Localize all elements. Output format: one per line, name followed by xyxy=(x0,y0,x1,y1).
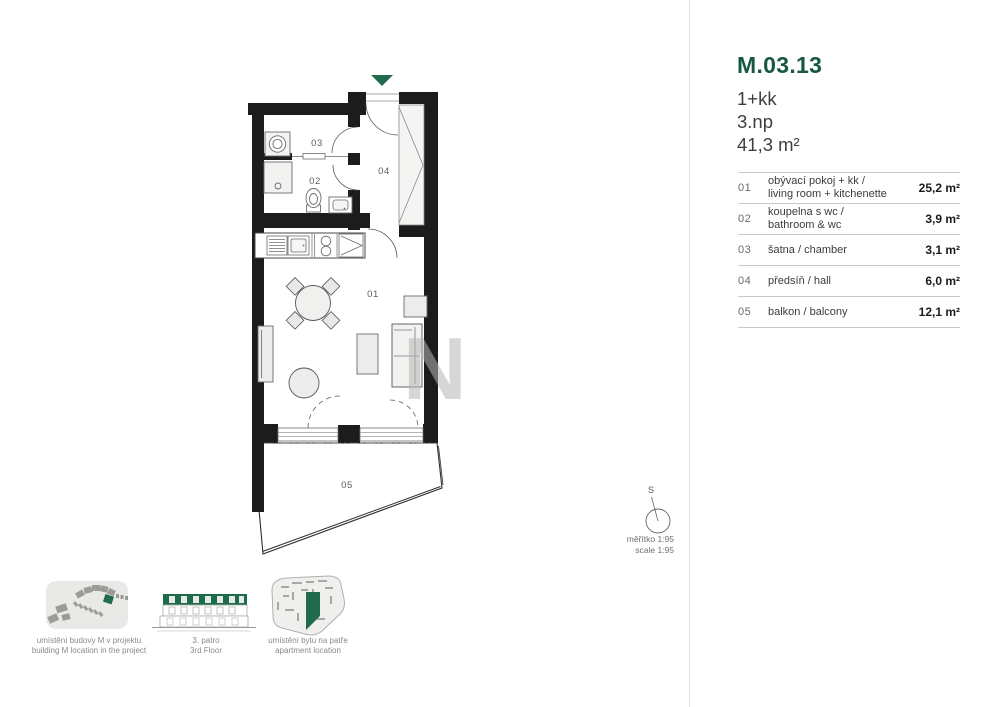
room-number: 05 xyxy=(738,306,768,318)
nightstand xyxy=(404,296,427,317)
room-area: 3,1 m² xyxy=(925,243,960,257)
room-label-01: 01 xyxy=(367,289,379,300)
table-row: 01obývací pokoj + kk /living room + kitc… xyxy=(738,173,960,204)
site-plan-thumbnail xyxy=(46,581,128,629)
room-label-05: 05 xyxy=(341,480,353,491)
caption-line: 3. patro xyxy=(168,636,244,646)
table-row: 05balkon / balcony12,1 m² xyxy=(738,297,960,328)
unit-specs: 1+kk 3.np 41,3 m² xyxy=(737,87,800,156)
room-label-03: 03 xyxy=(311,138,323,149)
unit-total-area: 41,3 m² xyxy=(737,133,800,156)
caption-line: 3rd Floor xyxy=(168,646,244,656)
table-row: 04předsíň / hall6,0 m² xyxy=(738,266,960,297)
caption-line: umístění bytu na patře xyxy=(262,636,354,646)
unit-layout: 1+kk xyxy=(737,87,800,110)
compass-icon: S xyxy=(646,485,670,533)
site-plan-caption: umístění budovy M v projektu building M … xyxy=(30,636,148,656)
panel-divider xyxy=(689,0,690,707)
balcony-outline xyxy=(253,443,443,554)
side-table xyxy=(357,334,378,374)
unit-code: M.03.13 xyxy=(737,52,822,79)
entrance-door xyxy=(366,92,399,104)
compass-north-label: S xyxy=(648,485,654,495)
floor-caption: 3. patro 3rd Floor xyxy=(168,636,244,656)
scale-line-cz: měřítko 1:95 xyxy=(627,534,675,544)
toilet-icon xyxy=(306,189,321,213)
scale-note: měřítko 1:95 scale 1:95 xyxy=(627,534,675,555)
room-number: 02 xyxy=(738,213,768,225)
washing-machine-icon xyxy=(265,132,290,156)
partition-shelf xyxy=(292,154,348,160)
scale-line-en: scale 1:95 xyxy=(635,545,674,555)
room-label-04: 04 xyxy=(378,166,390,177)
caption-line: building M location in the project xyxy=(30,646,148,656)
wardrobe xyxy=(258,326,273,382)
room-area: 6,0 m² xyxy=(925,274,960,288)
dining-table xyxy=(286,278,340,330)
room-name: předsíň / hall xyxy=(768,275,925,288)
room-table: 01obývací pokoj + kk /living room + kitc… xyxy=(738,172,960,328)
room-name: šatna / chamber xyxy=(768,244,925,257)
room-area: 25,2 m² xyxy=(919,181,960,195)
room-area: 3,9 m² xyxy=(925,212,960,226)
room-number: 04 xyxy=(738,275,768,287)
table-row: 02koupelna s wc /bathroom & wc3,9 m² xyxy=(738,204,960,235)
caption-line: umístění budovy M v projektu xyxy=(30,636,148,646)
apartment-caption: umístění bytu na patře apartment locatio… xyxy=(262,636,354,656)
floor-plate-thumbnail xyxy=(272,576,345,635)
room-area: 12,1 m² xyxy=(919,305,960,319)
room-number: 03 xyxy=(738,244,768,256)
unit-floor: 3.np xyxy=(737,110,800,133)
caption-line: apartment location xyxy=(262,646,354,656)
floorplan-sheet: N 03 02 04 01 05 S měřítko 1:95 scale 1:… xyxy=(0,0,1000,707)
elevation-thumbnail xyxy=(152,594,256,631)
room-name: obývací pokoj + kk /living room + kitche… xyxy=(768,175,919,201)
fridge-icon xyxy=(339,234,363,257)
floor-plan-svg: N 03 02 04 01 05 S měřítko 1:95 scale 1:… xyxy=(0,0,1000,707)
hall-closet xyxy=(399,105,424,225)
pouf xyxy=(289,368,319,398)
room-name: balkon / balcony xyxy=(768,306,919,319)
table-row: 03šatna / chamber3,1 m² xyxy=(738,235,960,266)
entrance-arrow-icon xyxy=(371,75,393,86)
shower-icon xyxy=(264,162,292,193)
room-number: 01 xyxy=(738,182,768,194)
watermark-text: N xyxy=(403,319,467,418)
room-name: koupelna s wc /bathroom & wc xyxy=(768,206,925,232)
room-label-02: 02 xyxy=(309,176,321,187)
kitchen-counter xyxy=(255,233,365,258)
bathroom-sink-icon xyxy=(329,197,352,213)
